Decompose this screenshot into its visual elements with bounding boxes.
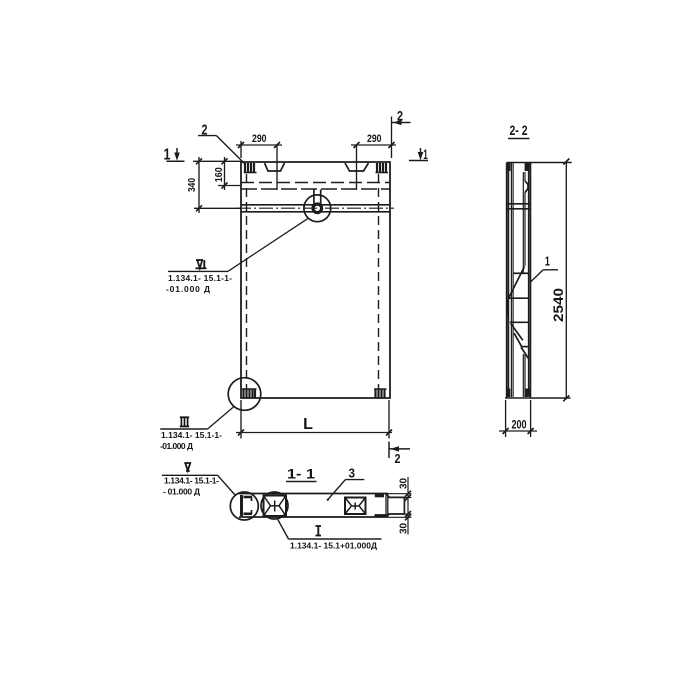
svg-text:290: 290 xyxy=(367,133,382,145)
svg-text:160: 160 xyxy=(214,167,225,182)
svg-text:1: 1 xyxy=(545,255,550,269)
svg-text:1- 1: 1- 1 xyxy=(287,467,316,482)
svg-text:L: L xyxy=(303,416,313,433)
svg-text:3: 3 xyxy=(349,466,356,481)
svg-text:2: 2 xyxy=(397,108,403,124)
svg-text:2- 2: 2- 2 xyxy=(510,123,528,138)
svg-text:1: 1 xyxy=(164,147,171,164)
svg-text:1.134.1- 15.1+01.000Д: 1.134.1- 15.1+01.000Д xyxy=(290,541,377,551)
svg-text:290: 290 xyxy=(252,133,267,145)
svg-text:-01.000 Д: -01.000 Д xyxy=(160,441,193,451)
svg-text:30: 30 xyxy=(399,523,410,534)
svg-text:2: 2 xyxy=(202,122,208,139)
svg-text:2540: 2540 xyxy=(551,288,566,322)
svg-text:- 01.000 Д: - 01.000 Д xyxy=(163,486,200,496)
svg-text:30: 30 xyxy=(399,478,410,489)
svg-text:200: 200 xyxy=(512,418,527,432)
svg-text:1.134.1- 15.1-1-: 1.134.1- 15.1-1- xyxy=(168,273,232,283)
svg-text:1.134.1- 15.1-1-: 1.134.1- 15.1-1- xyxy=(164,475,219,485)
svg-text:1: 1 xyxy=(423,146,428,162)
svg-text:1.134.1- 15.1-1-: 1.134.1- 15.1-1- xyxy=(161,430,222,440)
svg-text:-01.000 Д: -01.000 Д xyxy=(166,284,210,294)
svg-text:2: 2 xyxy=(395,452,401,466)
svg-text:340: 340 xyxy=(187,178,198,192)
